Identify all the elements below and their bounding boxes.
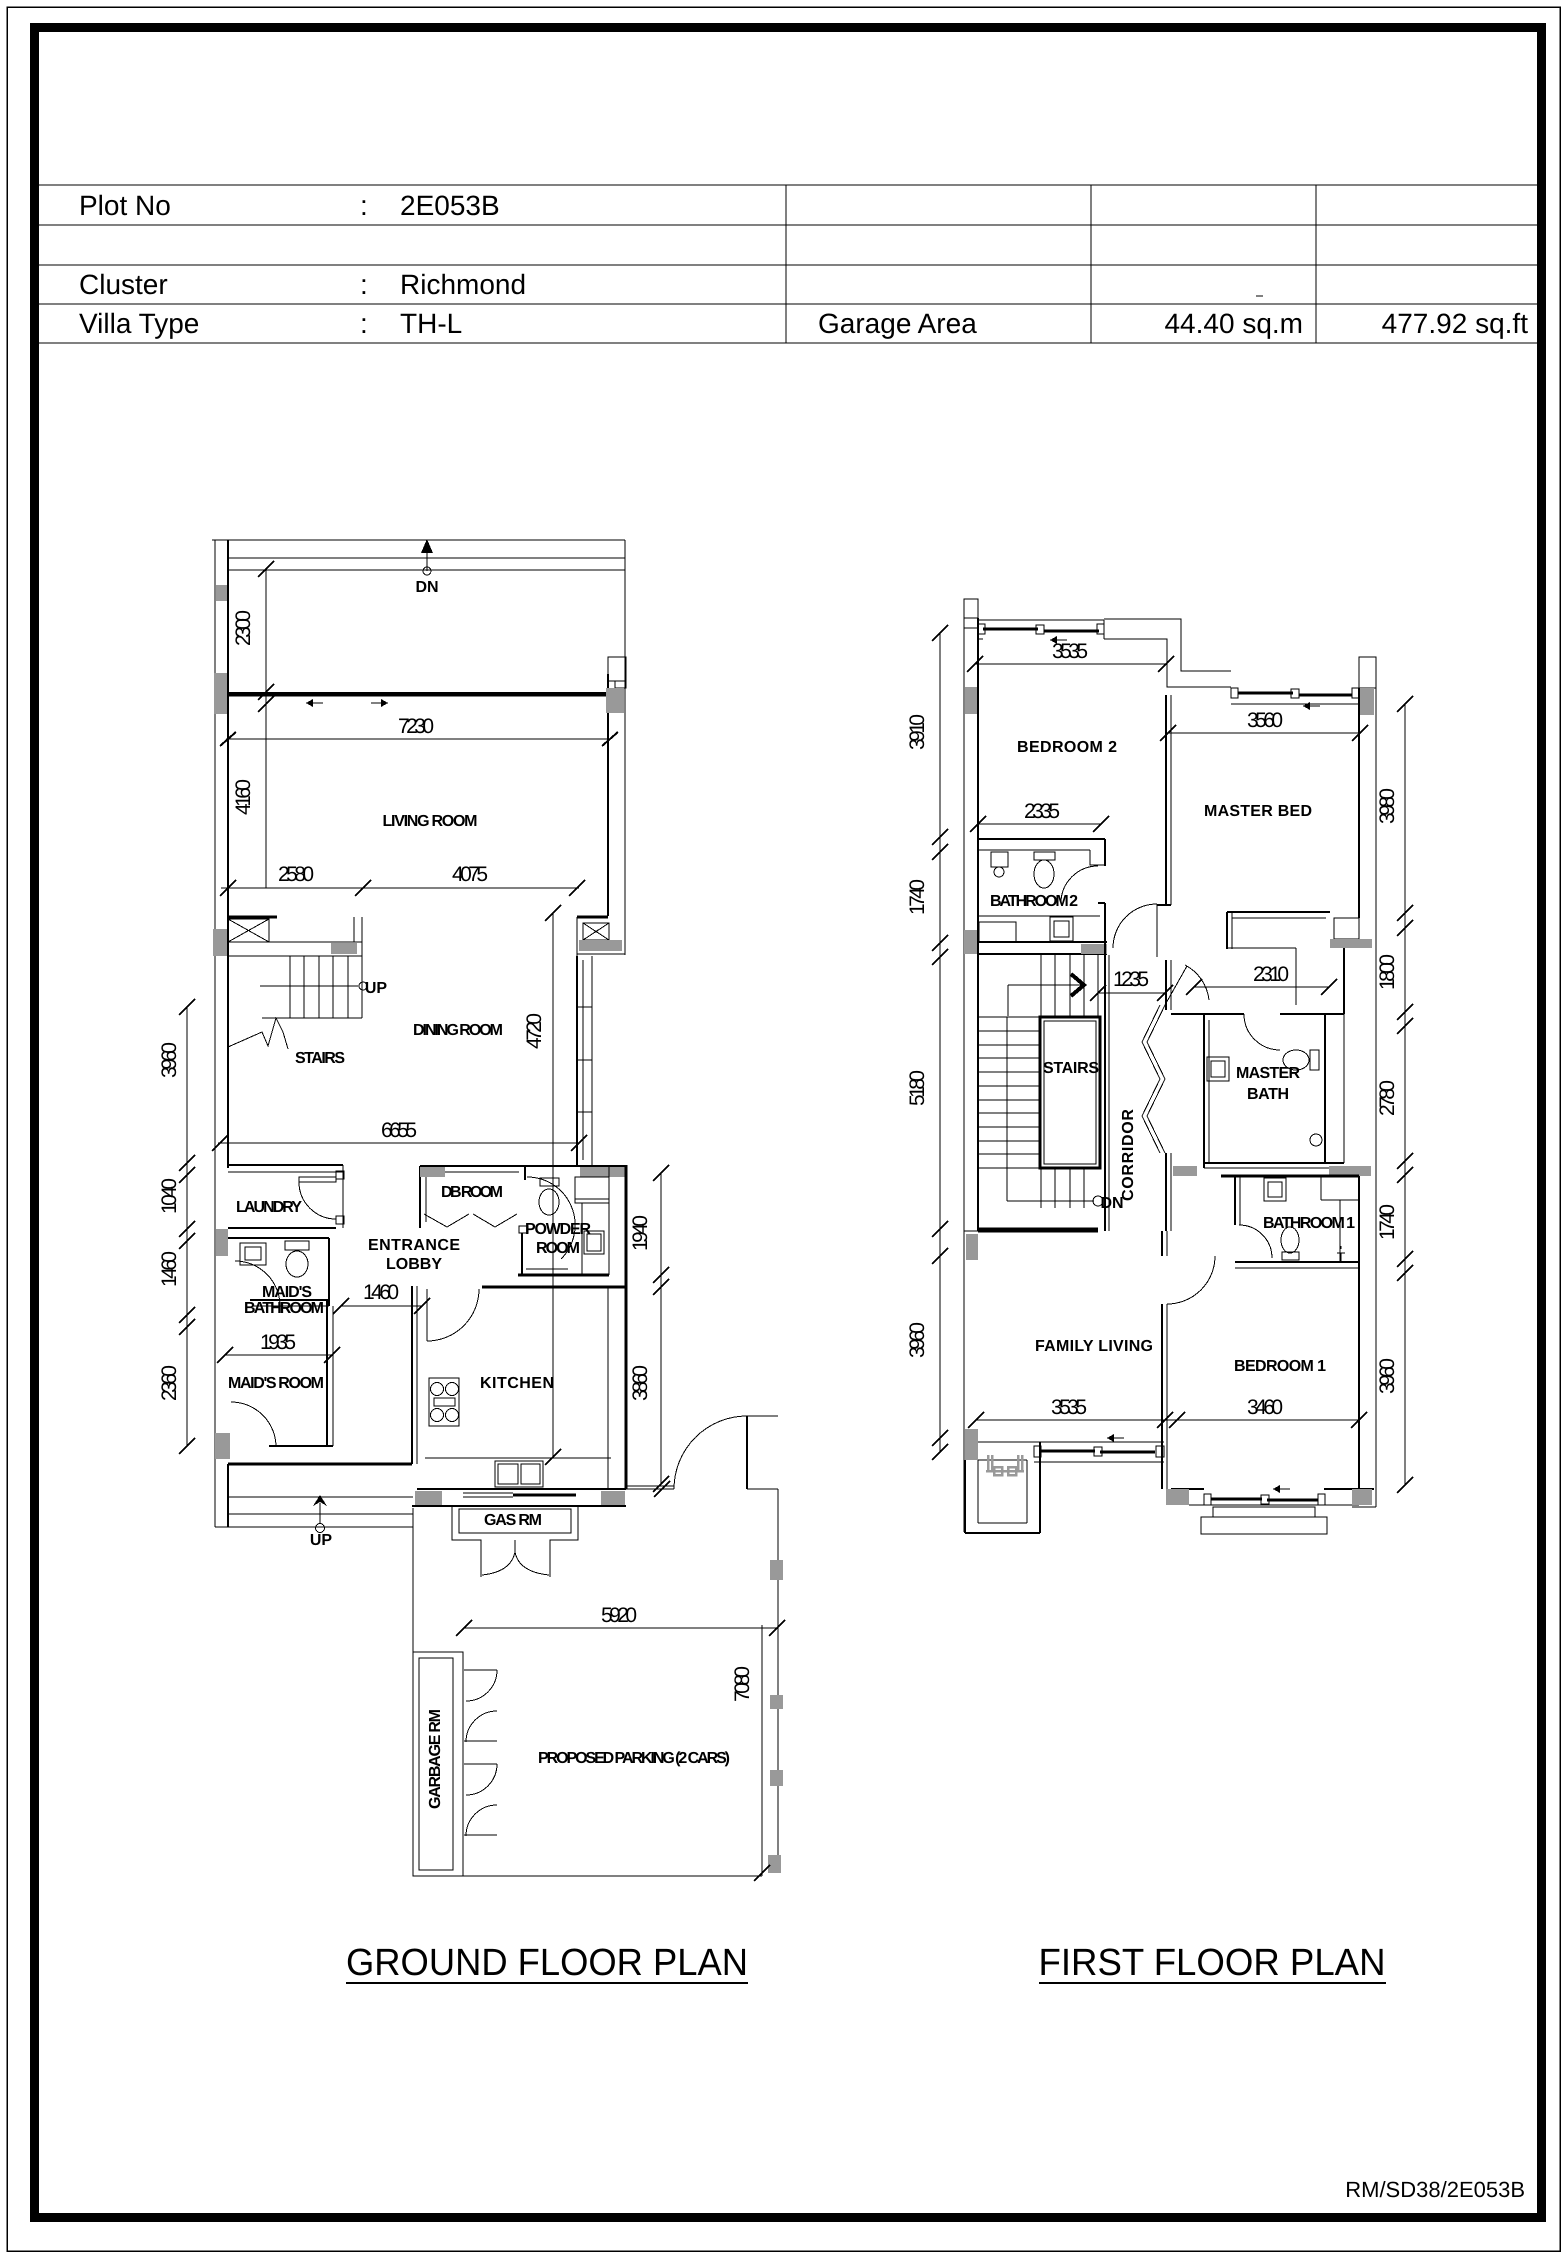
svg-text:LAUNDRY: LAUNDRY — [236, 1199, 302, 1216]
svg-text:3860: 3860 — [629, 1365, 652, 1401]
svg-text:2E053B: 2E053B — [400, 190, 500, 221]
svg-text:TH-L: TH-L — [400, 308, 462, 339]
svg-text:1935: 1935 — [260, 1331, 296, 1354]
svg-text:2360: 2360 — [158, 1365, 181, 1401]
svg-text:3535: 3535 — [1052, 640, 1088, 663]
svg-text:4720: 4720 — [523, 1013, 546, 1049]
svg-text:BEDROOM 2: BEDROOM 2 — [1017, 739, 1117, 756]
svg-text:1460: 1460 — [158, 1251, 181, 1287]
svg-text::: : — [360, 308, 368, 339]
svg-text:Garage Area: Garage Area — [818, 308, 977, 339]
svg-text:RM/SD38/2E053B: RM/SD38/2E053B — [1345, 2177, 1525, 2202]
svg-text:POWDER: POWDER — [525, 1221, 591, 1238]
svg-text:BEDROOM 1: BEDROOM 1 — [1234, 1358, 1326, 1375]
svg-text:1800: 1800 — [1376, 954, 1399, 990]
svg-text:BATH: BATH — [1247, 1086, 1289, 1103]
svg-text:STAIRS: STAIRS — [1043, 1060, 1099, 1077]
svg-text:UP: UP — [310, 1532, 333, 1549]
svg-text:7080: 7080 — [731, 1666, 754, 1702]
svg-text:5180: 5180 — [906, 1070, 929, 1106]
svg-text:GARBAGE RM: GARBAGE RM — [427, 1709, 444, 1809]
svg-text:3560: 3560 — [1247, 709, 1283, 732]
svg-text:UP: UP — [365, 980, 388, 997]
svg-text:3960: 3960 — [1376, 1358, 1399, 1394]
svg-text:LOBBY: LOBBY — [386, 1256, 442, 1273]
svg-text:GROUND FLOOR PLAN: GROUND FLOOR PLAN — [346, 1942, 748, 1984]
svg-text:4075: 4075 — [452, 863, 488, 886]
svg-text:MASTER BED: MASTER BED — [1204, 803, 1312, 820]
svg-text:1740: 1740 — [906, 879, 929, 915]
svg-text:1460: 1460 — [363, 1281, 399, 1304]
svg-text:4160: 4160 — [232, 779, 255, 815]
svg-text:GAS RM: GAS RM — [484, 1512, 542, 1529]
svg-text:LIVING ROOM: LIVING ROOM — [383, 813, 478, 830]
svg-text:MASTER: MASTER — [1236, 1065, 1300, 1082]
svg-text:2780: 2780 — [1376, 1080, 1399, 1116]
svg-text:2335: 2335 — [1024, 800, 1060, 823]
svg-text:Villa Type: Villa Type — [79, 308, 199, 339]
svg-text:1740: 1740 — [1376, 1204, 1399, 1240]
svg-text:BATHROOM 1: BATHROOM 1 — [1263, 1215, 1355, 1232]
svg-text:MAID'S ROOM: MAID'S ROOM — [228, 1375, 324, 1392]
svg-text:5920: 5920 — [601, 1604, 637, 1627]
svg-text:6655: 6655 — [381, 1119, 417, 1142]
svg-text:STAIRS: STAIRS — [295, 1050, 345, 1067]
svg-text:3960: 3960 — [906, 1322, 929, 1358]
svg-text:2580: 2580 — [278, 863, 314, 886]
svg-text:477.92 sq.ft: 477.92 sq.ft — [1382, 308, 1529, 339]
svg-text:2300: 2300 — [232, 610, 255, 646]
svg-text:ROOM: ROOM — [536, 1240, 580, 1257]
svg-text::: : — [360, 190, 368, 221]
svg-text:3980: 3980 — [1376, 788, 1399, 824]
svg-text:3960: 3960 — [158, 1042, 181, 1078]
svg-text:1235: 1235 — [1113, 968, 1149, 991]
svg-text:Cluster: Cluster — [79, 269, 168, 300]
svg-text:FAMILY LIVING: FAMILY LIVING — [1035, 1338, 1153, 1355]
svg-text:1940: 1940 — [629, 1215, 652, 1251]
svg-text:DN: DN — [415, 579, 438, 596]
svg-text:KITCHEN: KITCHEN — [480, 1375, 554, 1392]
svg-text:3535: 3535 — [1051, 1396, 1087, 1419]
svg-text:DINING ROOM: DINING ROOM — [413, 1022, 503, 1039]
svg-text:2310: 2310 — [1253, 963, 1289, 986]
svg-text:BATHROOM: BATHROOM — [244, 1300, 324, 1317]
svg-text:ENTRANCE: ENTRANCE — [368, 1237, 460, 1254]
svg-text:3910: 3910 — [906, 714, 929, 750]
svg-text:CORRIDOR: CORRIDOR — [1120, 1109, 1137, 1201]
svg-text:3460: 3460 — [1247, 1396, 1283, 1419]
svg-text:44.40 sq.m: 44.40 sq.m — [1164, 308, 1303, 339]
svg-text:FIRST FLOOR PLAN: FIRST FLOOR PLAN — [1039, 1942, 1386, 1984]
svg-text::: : — [360, 269, 368, 300]
svg-text:1040: 1040 — [158, 1178, 181, 1214]
svg-text:MAID'S: MAID'S — [262, 1284, 312, 1301]
svg-text:Richmond: Richmond — [400, 269, 526, 300]
svg-text:PROPOSED PARKING (2 CARS): PROPOSED PARKING (2 CARS) — [538, 1750, 730, 1767]
svg-text:DB ROOM: DB ROOM — [441, 1184, 503, 1201]
svg-text:BATHROOM 2: BATHROOM 2 — [990, 893, 1078, 910]
svg-text:Plot No: Plot No — [79, 190, 171, 221]
svg-text:7230: 7230 — [398, 715, 434, 738]
